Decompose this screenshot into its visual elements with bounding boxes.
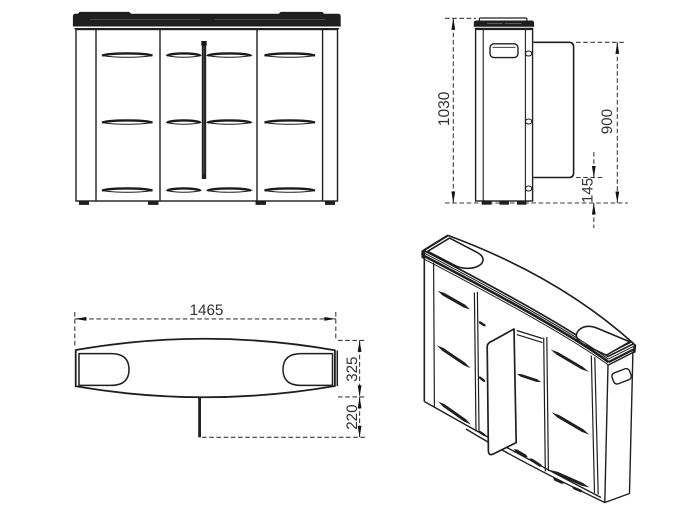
svg-text:900: 900 — [599, 109, 616, 134]
svg-text:1465: 1465 — [190, 302, 224, 319]
svg-text:145: 145 — [579, 178, 596, 203]
svg-text:220: 220 — [344, 404, 361, 429]
svg-text:325: 325 — [344, 357, 361, 382]
svg-text:1030: 1030 — [436, 91, 453, 126]
